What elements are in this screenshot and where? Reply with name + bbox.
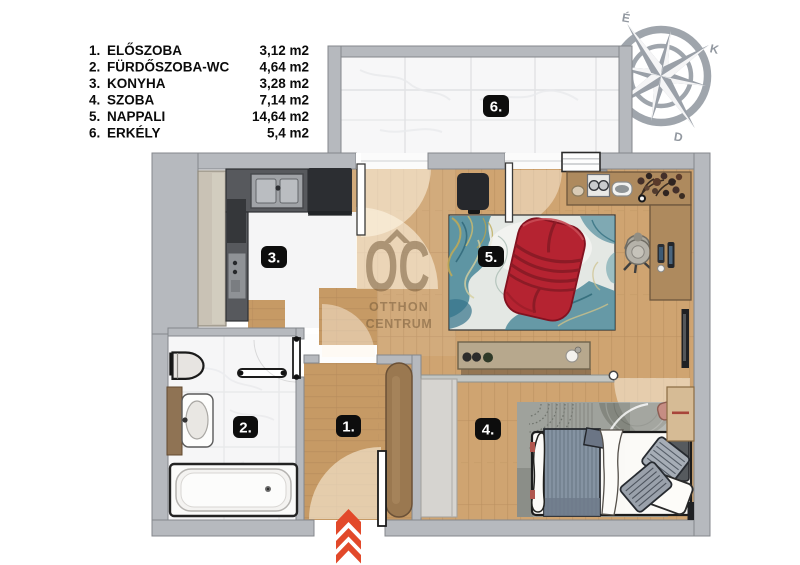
svg-text:6.: 6. (490, 99, 503, 116)
svg-text:4.: 4. (89, 93, 100, 108)
svg-text:6.: 6. (89, 126, 100, 141)
svg-text:ERKÉLY: ERKÉLY (107, 126, 161, 141)
svg-text:3.: 3. (89, 76, 100, 91)
svg-text:3.: 3. (268, 250, 281, 267)
svg-text:4.: 4. (482, 422, 495, 439)
svg-text:2.: 2. (89, 60, 100, 75)
svg-text:FÜRDŐSZOBA-WC: FÜRDŐSZOBA-WC (107, 60, 229, 75)
svg-text:7,14 m2: 7,14 m2 (259, 93, 309, 108)
svg-text:ELŐSZOBA: ELŐSZOBA (107, 43, 182, 58)
svg-text:1.: 1. (89, 43, 100, 58)
svg-text:CENTRUM: CENTRUM (366, 317, 433, 331)
svg-text:14,64 m2: 14,64 m2 (252, 109, 309, 124)
svg-text:NAPPALI: NAPPALI (107, 109, 165, 124)
svg-text:SZOBA: SZOBA (107, 93, 155, 108)
svg-text:4,64 m2: 4,64 m2 (259, 60, 309, 75)
svg-text:OC: OC (364, 226, 430, 307)
svg-text:5.: 5. (485, 249, 498, 266)
svg-text:5,4 m2: 5,4 m2 (267, 126, 309, 141)
svg-text:2.: 2. (239, 420, 252, 437)
svg-text:1.: 1. (342, 419, 355, 436)
svg-text:5.: 5. (89, 109, 100, 124)
svg-text:KONYHA: KONYHA (107, 76, 166, 91)
svg-text:OTTHON: OTTHON (369, 300, 429, 314)
svg-text:3,28 m2: 3,28 m2 (259, 76, 309, 91)
svg-text:3,12 m2: 3,12 m2 (259, 43, 309, 58)
